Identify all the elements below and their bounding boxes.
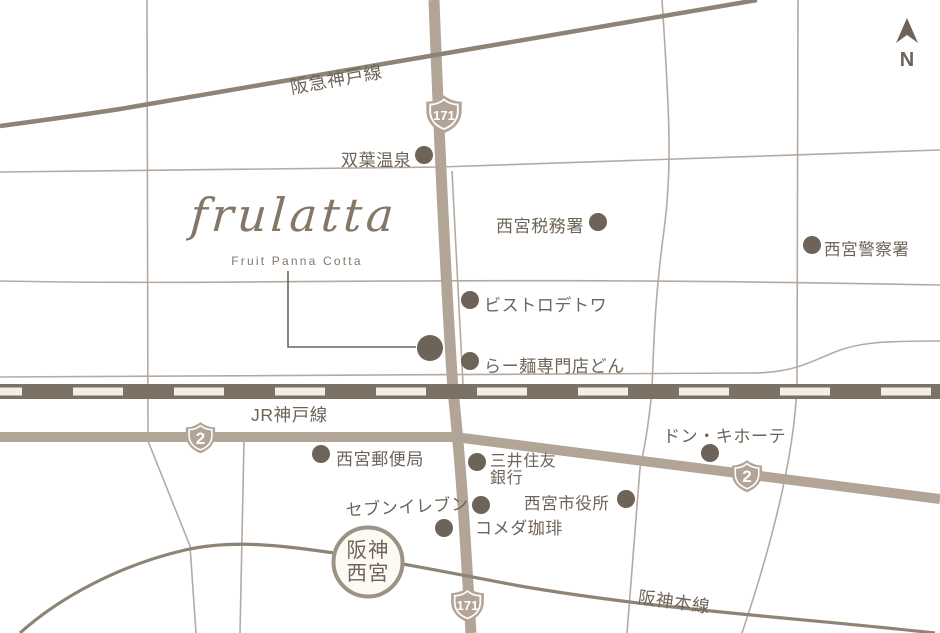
north-arrow-icon xyxy=(896,18,918,43)
label-mitsui-bank-line1: 三井住友 xyxy=(490,454,556,471)
dot-zeimusho xyxy=(589,213,607,231)
dot-shiyakusho xyxy=(617,490,635,508)
route-shield-171-south: 171 xyxy=(449,585,486,624)
dot-keisatsusho xyxy=(803,236,821,254)
label-mitsui-bank: 三井住友 銀行 xyxy=(490,454,556,487)
label-futaba-onsen: 双葉温泉 xyxy=(341,146,411,171)
route-shield-171-north: 171 xyxy=(424,93,464,135)
label-donki: ドン・キホーテ xyxy=(663,422,786,447)
label-keisatsusho: 西宮警察署 xyxy=(824,236,910,260)
road-vertical-west xyxy=(147,0,148,441)
dot-bistro xyxy=(461,291,479,309)
access-map: frulatta Fruit Panna Cotta N 阪急神戸線 JR神戸線… xyxy=(0,0,940,633)
dot-shop-location xyxy=(417,335,443,361)
shop-logo: frulatta xyxy=(166,188,422,242)
shop-pointer-line xyxy=(288,271,416,347)
dot-seven-eleven xyxy=(435,519,453,537)
route-shield-2-east: 2 xyxy=(730,458,764,494)
map-canvas xyxy=(0,0,940,633)
road-diagonal-southwest xyxy=(148,441,196,633)
road-vertical-east-1 xyxy=(627,0,669,633)
dot-mitsui-bank xyxy=(468,453,486,471)
north-indicator: N xyxy=(894,18,920,72)
north-label: N xyxy=(894,49,920,72)
dot-futaba-onsen xyxy=(415,146,433,164)
road-horizontal-middle xyxy=(0,281,940,285)
shop-logo-subtitle: Fruit Panna Cotta xyxy=(222,254,372,268)
road-vertical-east-2 xyxy=(742,0,798,633)
label-ramen-don: らー麺専門店どん xyxy=(484,352,625,377)
route-number: 171 xyxy=(424,93,464,135)
label-yubinkyoku: 西宮郵便局 xyxy=(336,445,424,470)
label-zeimusho: 西宮税務署 xyxy=(496,212,584,237)
station-name-line1: 阪神 xyxy=(333,540,403,563)
dot-yubinkyoku xyxy=(312,445,330,463)
label-bistro: ビストロデトワ xyxy=(484,291,607,316)
road-horizontal-upper xyxy=(0,150,940,172)
route-shield-2-west: 2 xyxy=(184,420,217,455)
station-name-line2: 西宮 xyxy=(333,563,403,586)
label-mitsui-bank-line2: 銀行 xyxy=(490,471,556,488)
label-shiyakusho: 西宮市役所 xyxy=(524,490,610,514)
route-number: 2 xyxy=(730,458,764,494)
road-vertical-south-center xyxy=(240,441,244,633)
route-number: 171 xyxy=(449,585,486,624)
label-komeda: コメダ珈琲 xyxy=(475,514,563,539)
route-number: 2 xyxy=(184,420,217,455)
dot-ramen-don xyxy=(461,352,479,370)
label-jr-line: JR神戸線 xyxy=(251,402,328,427)
station-name: 阪神 西宮 xyxy=(333,540,403,585)
dot-komeda xyxy=(472,496,490,514)
